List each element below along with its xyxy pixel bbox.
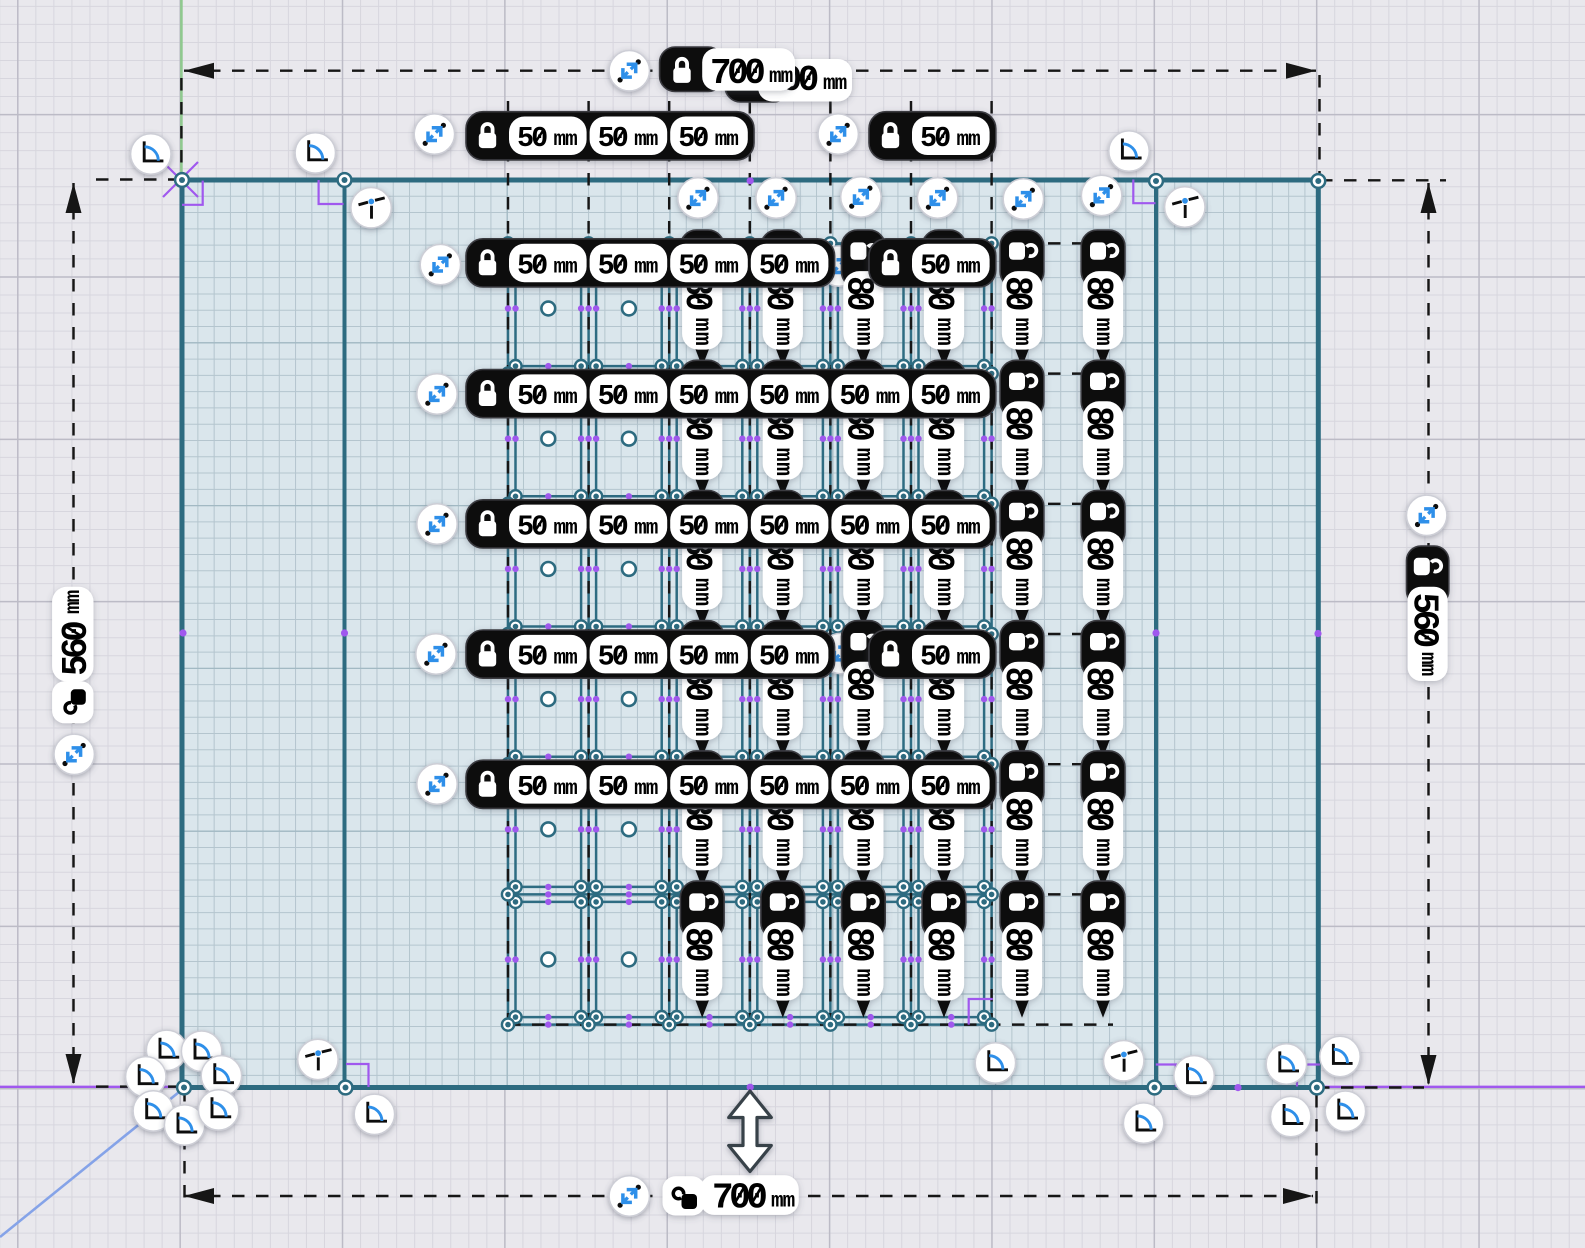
svg-text:50: 50 xyxy=(517,771,547,804)
svg-text:80: 80 xyxy=(756,927,800,961)
svg-text:mm: mm xyxy=(715,387,739,410)
svg-text:mm: mm xyxy=(1090,318,1116,347)
svg-text:80: 80 xyxy=(1076,927,1120,961)
svg-text:50: 50 xyxy=(598,249,628,282)
svg-text:mm: mm xyxy=(876,778,900,801)
svg-text:mm: mm xyxy=(689,578,715,607)
svg-text:50: 50 xyxy=(839,510,869,543)
svg-text:50: 50 xyxy=(517,122,547,155)
svg-text:80: 80 xyxy=(917,927,961,961)
svg-text:50: 50 xyxy=(598,771,628,804)
svg-text:50: 50 xyxy=(678,771,708,804)
svg-text:mm: mm xyxy=(769,66,793,89)
svg-text:mm: mm xyxy=(850,318,876,347)
svg-text:50: 50 xyxy=(759,510,789,543)
svg-text:mm: mm xyxy=(850,578,876,607)
svg-text:mm: mm xyxy=(850,448,876,477)
svg-text:mm: mm xyxy=(554,778,578,801)
svg-text:mm: mm xyxy=(957,648,981,671)
svg-text:80: 80 xyxy=(995,667,1039,701)
svg-text:50: 50 xyxy=(839,771,869,804)
svg-text:mm: mm xyxy=(850,969,876,998)
svg-text:50: 50 xyxy=(759,641,789,674)
svg-text:80: 80 xyxy=(995,276,1039,310)
svg-text:50: 50 xyxy=(517,249,547,282)
svg-text:mm: mm xyxy=(795,648,819,671)
svg-text:mm: mm xyxy=(795,517,819,540)
svg-text:50: 50 xyxy=(920,122,950,155)
svg-text:mm: mm xyxy=(634,648,658,671)
svg-text:mm: mm xyxy=(1090,708,1116,737)
svg-text:mm: mm xyxy=(931,708,957,737)
svg-text:mm: mm xyxy=(715,517,739,540)
svg-text:50: 50 xyxy=(598,380,628,413)
svg-text:50: 50 xyxy=(920,380,950,413)
svg-text:50: 50 xyxy=(598,641,628,674)
svg-text:80: 80 xyxy=(1076,406,1120,440)
svg-text:mm: mm xyxy=(876,387,900,410)
svg-text:mm: mm xyxy=(554,517,578,540)
svg-text:80: 80 xyxy=(1076,276,1120,310)
svg-text:80: 80 xyxy=(675,927,719,961)
svg-text:mm: mm xyxy=(634,517,658,540)
svg-text:mm: mm xyxy=(1415,652,1438,676)
svg-text:50: 50 xyxy=(517,380,547,413)
svg-text:mm: mm xyxy=(795,256,819,279)
svg-text:mm: mm xyxy=(554,129,578,152)
svg-text:mm: mm xyxy=(850,708,876,737)
svg-text:mm: mm xyxy=(715,778,739,801)
svg-text:mm: mm xyxy=(689,969,715,998)
svg-text:mm: mm xyxy=(634,129,658,152)
svg-text:50: 50 xyxy=(920,771,950,804)
svg-text:mm: mm xyxy=(957,256,981,279)
svg-text:50: 50 xyxy=(598,122,628,155)
svg-text:50: 50 xyxy=(759,771,789,804)
svg-text:50: 50 xyxy=(920,510,950,543)
svg-text:mm: mm xyxy=(770,708,796,737)
svg-text:mm: mm xyxy=(770,969,796,998)
svg-text:mm: mm xyxy=(850,838,876,867)
svg-text:mm: mm xyxy=(957,129,981,152)
svg-text:50: 50 xyxy=(920,249,950,282)
svg-text:mm: mm xyxy=(634,387,658,410)
svg-text:mm: mm xyxy=(770,838,796,867)
svg-text:80: 80 xyxy=(837,927,881,961)
svg-text:80: 80 xyxy=(1076,797,1120,831)
svg-text:mm: mm xyxy=(931,318,957,347)
svg-text:560: 560 xyxy=(56,622,97,676)
svg-text:50: 50 xyxy=(920,641,950,674)
svg-text:mm: mm xyxy=(1009,969,1035,998)
svg-text:50: 50 xyxy=(839,380,869,413)
svg-text:mm: mm xyxy=(1090,838,1116,867)
svg-text:50: 50 xyxy=(678,122,708,155)
svg-text:mm: mm xyxy=(931,838,957,867)
svg-text:mm: mm xyxy=(1009,838,1035,867)
svg-text:50: 50 xyxy=(759,380,789,413)
svg-text:mm: mm xyxy=(1009,578,1035,607)
svg-text:50: 50 xyxy=(678,641,708,674)
svg-text:50: 50 xyxy=(678,249,708,282)
svg-text:mm: mm xyxy=(554,387,578,410)
svg-text:mm: mm xyxy=(931,969,957,998)
svg-text:80: 80 xyxy=(1076,537,1120,571)
svg-text:mm: mm xyxy=(689,838,715,867)
svg-text:mm: mm xyxy=(1090,578,1116,607)
svg-text:80: 80 xyxy=(1076,667,1120,701)
svg-text:50: 50 xyxy=(517,510,547,543)
svg-text:mm: mm xyxy=(634,256,658,279)
svg-text:mm: mm xyxy=(957,517,981,540)
svg-text:mm: mm xyxy=(957,387,981,410)
svg-text:mm: mm xyxy=(715,648,739,671)
svg-text:mm: mm xyxy=(715,256,739,279)
svg-text:mm: mm xyxy=(689,708,715,737)
svg-text:560: 560 xyxy=(1404,593,1445,647)
svg-text:mm: mm xyxy=(63,590,86,614)
svg-text:mm: mm xyxy=(770,578,796,607)
svg-text:mm: mm xyxy=(823,73,847,96)
svg-text:50: 50 xyxy=(759,249,789,282)
svg-text:mm: mm xyxy=(715,129,739,152)
svg-text:mm: mm xyxy=(795,387,819,410)
svg-text:50: 50 xyxy=(598,510,628,543)
svg-text:mm: mm xyxy=(771,1191,795,1214)
svg-text:50: 50 xyxy=(678,380,708,413)
svg-text:50: 50 xyxy=(678,510,708,543)
svg-text:mm: mm xyxy=(554,256,578,279)
svg-text:mm: mm xyxy=(1009,318,1035,347)
svg-text:mm: mm xyxy=(1090,969,1116,998)
svg-text:mm: mm xyxy=(689,318,715,347)
svg-text:mm: mm xyxy=(1090,448,1116,477)
svg-text:mm: mm xyxy=(770,318,796,347)
svg-text:mm: mm xyxy=(957,778,981,801)
svg-text:mm: mm xyxy=(689,448,715,477)
svg-text:80: 80 xyxy=(995,797,1039,831)
svg-text:mm: mm xyxy=(770,448,796,477)
svg-text:80: 80 xyxy=(995,537,1039,571)
svg-text:80: 80 xyxy=(995,927,1039,961)
svg-text:mm: mm xyxy=(1009,448,1035,477)
svg-text:mm: mm xyxy=(1009,708,1035,737)
svg-text:mm: mm xyxy=(634,778,658,801)
svg-text:mm: mm xyxy=(795,778,819,801)
svg-text:50: 50 xyxy=(517,641,547,674)
svg-text:mm: mm xyxy=(876,517,900,540)
svg-text:mm: mm xyxy=(931,448,957,477)
svg-text:mm: mm xyxy=(554,648,578,671)
svg-text:80: 80 xyxy=(995,406,1039,440)
svg-text:mm: mm xyxy=(931,578,957,607)
